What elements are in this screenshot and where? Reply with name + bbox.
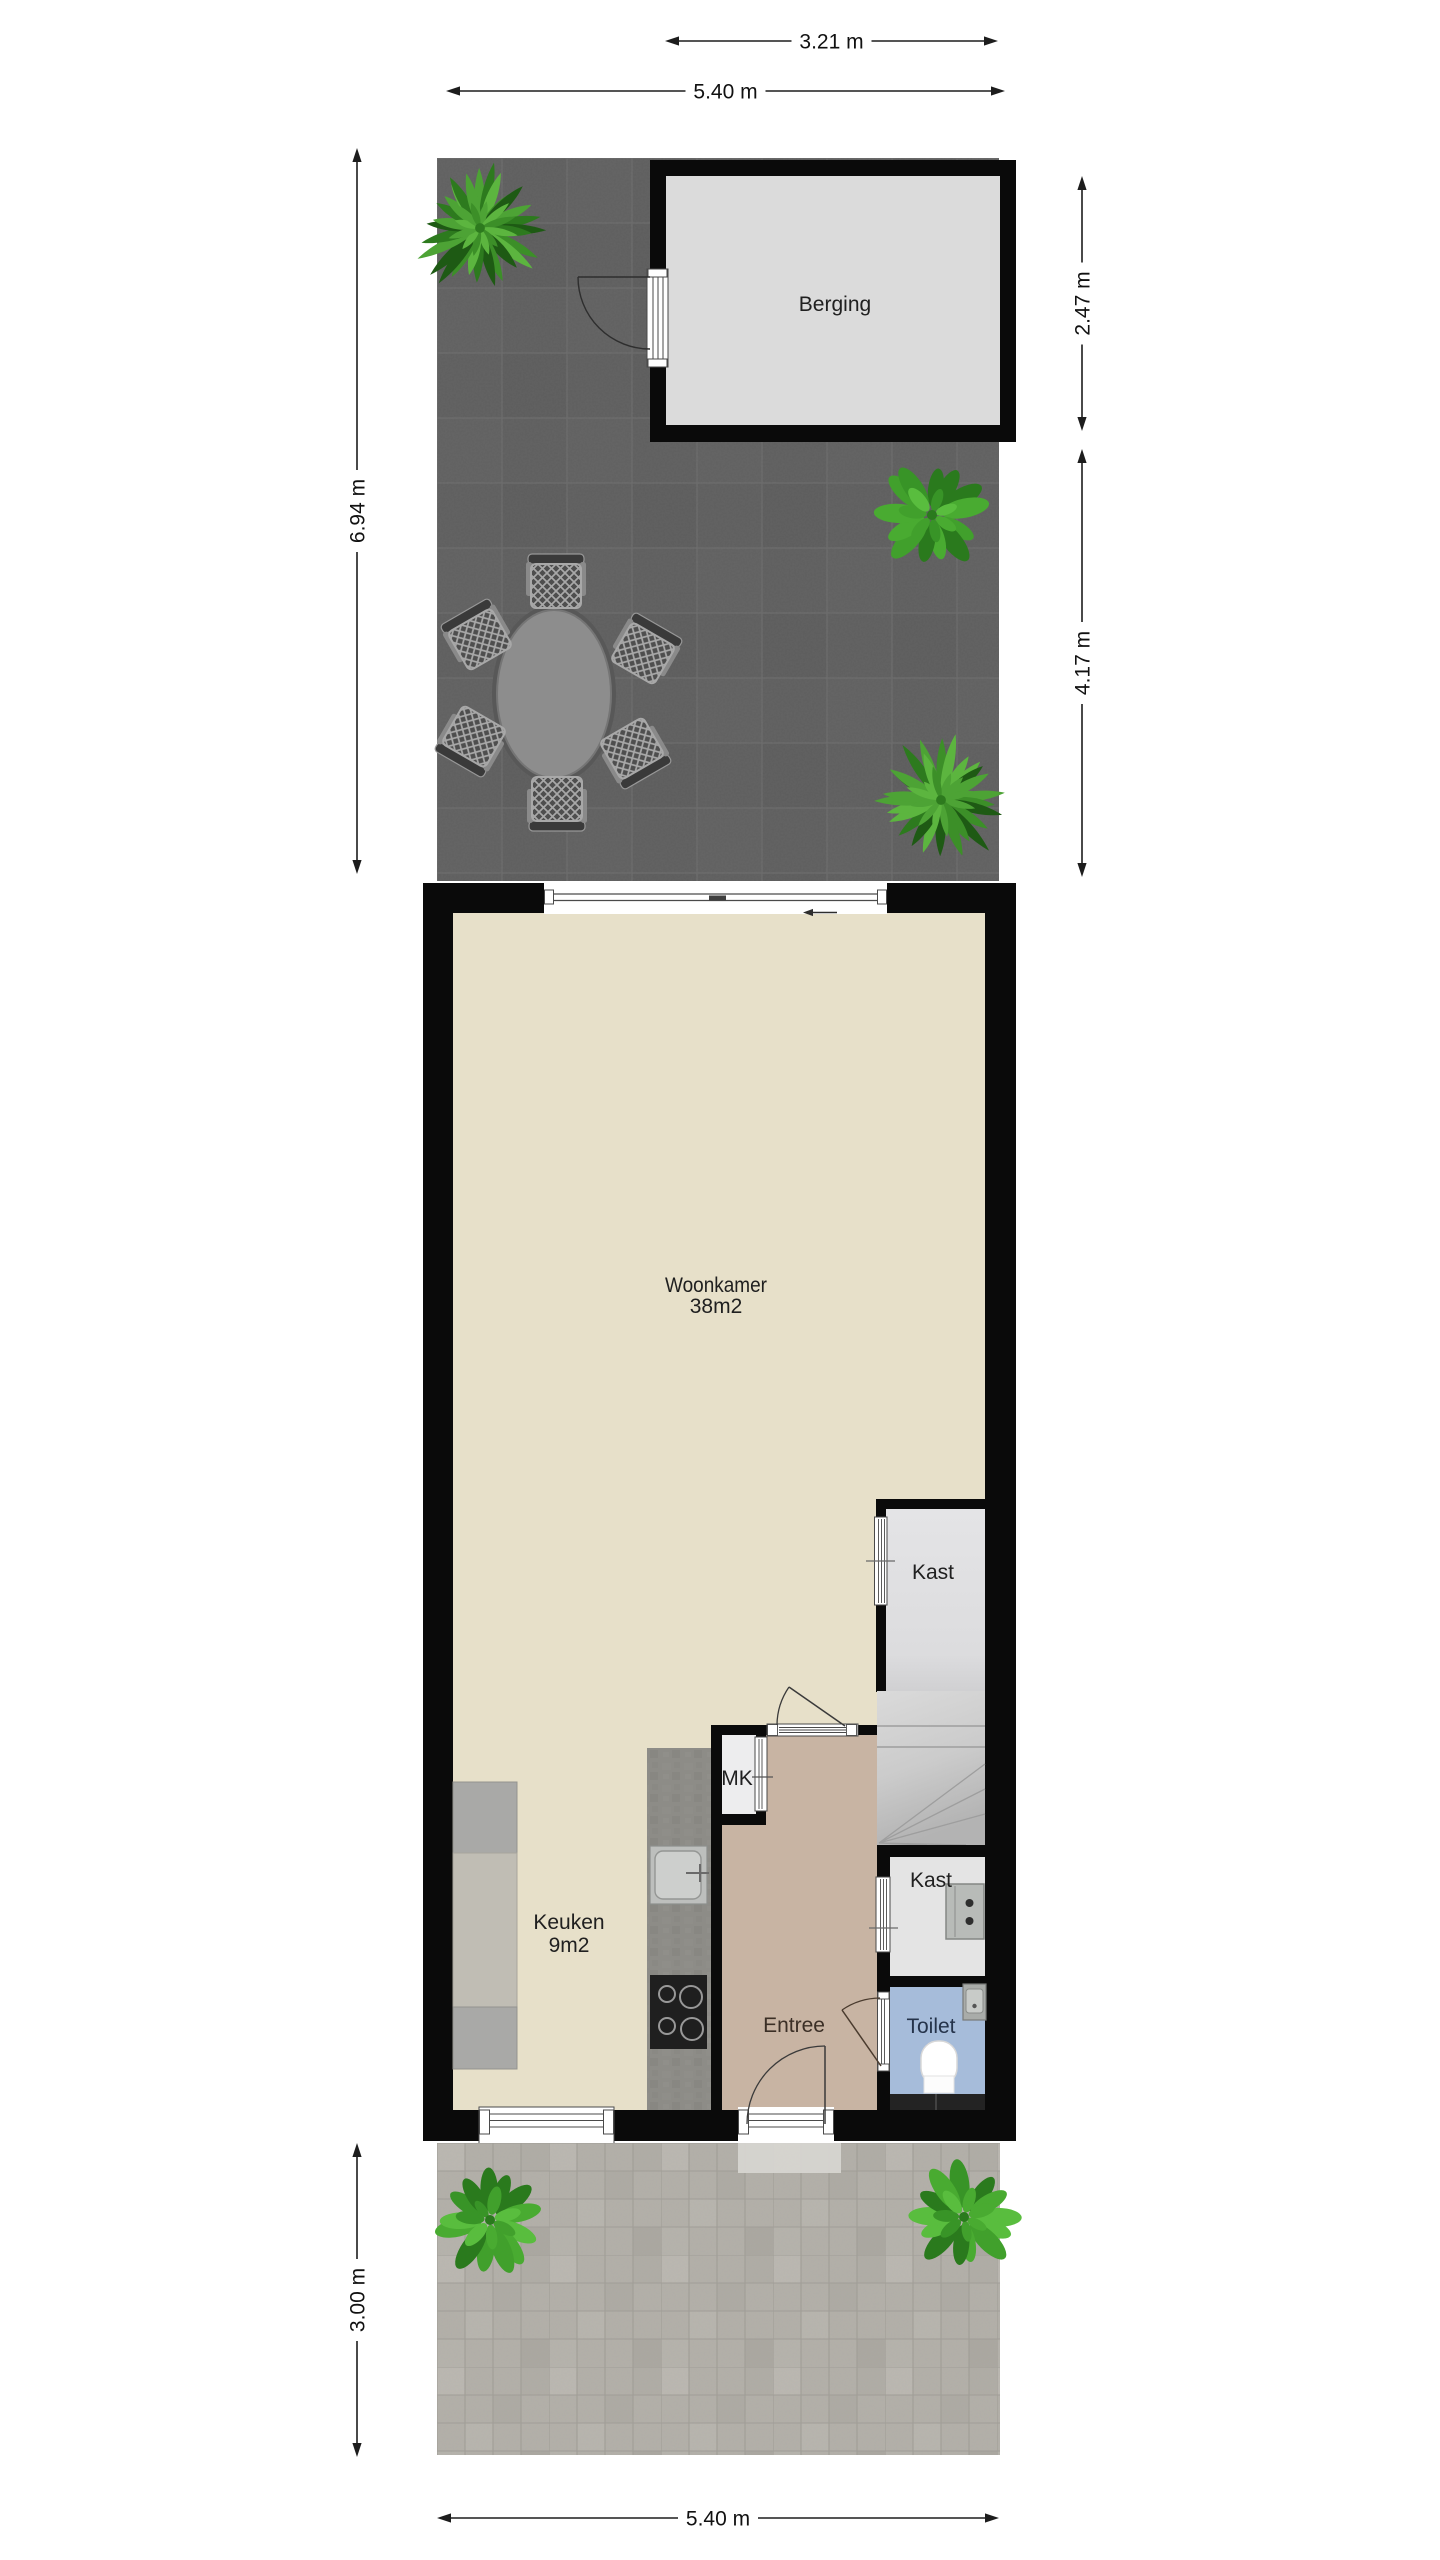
svg-text:3.00 m: 3.00 m — [347, 2268, 370, 2332]
svg-text:Woonkamer: Woonkamer — [665, 1274, 767, 1297]
svg-text:Kast: Kast — [912, 1561, 954, 1584]
svg-text:2.47 m: 2.47 m — [1072, 271, 1095, 335]
svg-text:5.40 m: 5.40 m — [693, 81, 757, 104]
svg-text:4.17 m: 4.17 m — [1072, 631, 1095, 695]
svg-text:Toilet: Toilet — [906, 2015, 955, 2038]
svg-text:38m2: 38m2 — [690, 1295, 743, 1318]
svg-text:5.40 m: 5.40 m — [686, 2508, 750, 2531]
svg-text:MK: MK — [721, 1767, 753, 1790]
svg-text:Entree: Entree — [763, 2014, 825, 2037]
svg-text:9m2: 9m2 — [549, 1934, 590, 1957]
svg-text:Kast: Kast — [910, 1869, 952, 1892]
svg-text:3.21 m: 3.21 m — [799, 31, 863, 54]
svg-text:6.94 m: 6.94 m — [347, 479, 370, 543]
svg-text:Berging: Berging — [799, 293, 871, 316]
svg-text:Keuken: Keuken — [533, 1911, 604, 1934]
